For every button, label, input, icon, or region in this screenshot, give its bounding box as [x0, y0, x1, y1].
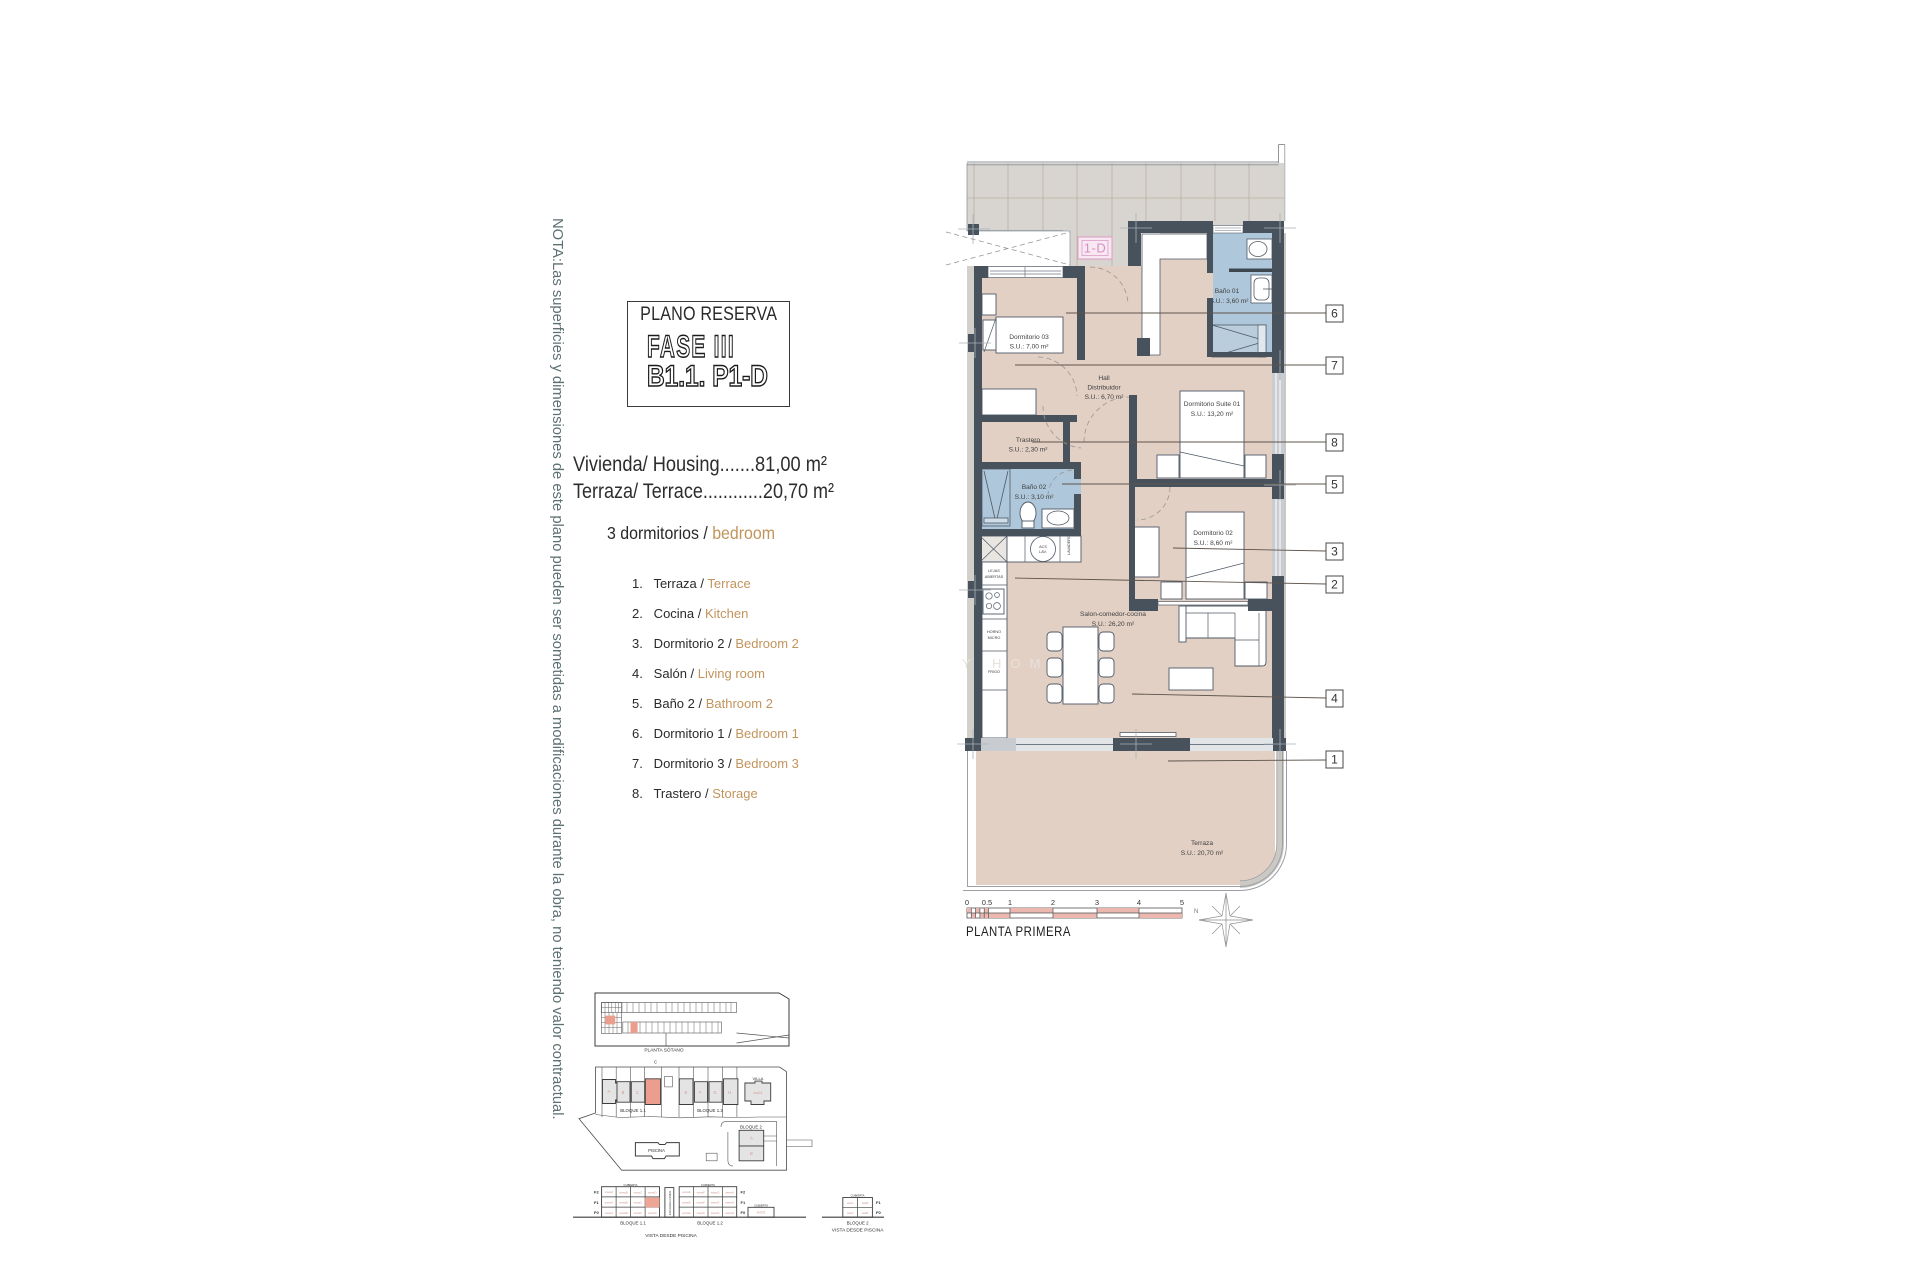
svg-text:MICRO: MICRO: [988, 636, 1001, 640]
svg-text:CUBIERTA: CUBIERTA: [701, 1183, 715, 1187]
svg-text:BLOQUE 1.2: BLOQUE 1.2: [697, 1108, 723, 1113]
svg-text:S.U.: 7,00 m²: S.U.: 7,00 m²: [1010, 344, 1050, 351]
svg-text:Hall: Hall: [1098, 375, 1110, 382]
svg-text:wwwC: wwwC: [634, 1201, 643, 1205]
svg-text:S.U.: 20,70 m²: S.U.: 20,70 m²: [1181, 850, 1224, 857]
svg-text:E: E: [685, 1090, 688, 1095]
svg-text:wwwB: wwwB: [619, 1191, 628, 1195]
svg-text:wwwE: wwwE: [682, 1190, 691, 1194]
svg-text:wwwA: wwwA: [605, 1211, 614, 1215]
svg-text:4: 4: [1331, 692, 1338, 706]
svg-text:BLOQUE 1.1: BLOQUE 1.1: [620, 1108, 646, 1113]
svg-text:wwwA: wwwA: [605, 1190, 614, 1194]
svg-text:Terraza: Terraza: [1191, 840, 1213, 847]
svg-text:CUBIERTA: CUBIERTA: [624, 1183, 638, 1187]
svg-text:wwwB: wwwB: [619, 1201, 628, 1205]
svg-text:1-D: 1-D: [1084, 241, 1106, 256]
svg-text:wwwA: wwwA: [605, 1201, 614, 1205]
svg-text:Dormitorio 02: Dormitorio 02: [1193, 530, 1233, 537]
svg-text:wwH: wwH: [847, 1211, 854, 1215]
svg-text:1: 1: [1331, 753, 1338, 767]
svg-text:wwwE: wwwE: [682, 1211, 691, 1215]
svg-text:PLANTA PRIMERA: PLANTA PRIMERA: [966, 924, 1071, 939]
svg-text:B: B: [622, 1090, 625, 1095]
svg-text:BLOQUE 1.1: BLOQUE 1.1: [620, 1221, 646, 1226]
svg-text:BLOQUE 1.2: BLOQUE 1.2: [697, 1221, 723, 1226]
svg-text:F2: F2: [594, 1190, 599, 1195]
svg-text:S.U.: 3,60 m²: S.U.: 3,60 m²: [1210, 298, 1250, 305]
svg-text:5: 5: [1331, 478, 1338, 492]
svg-text:wwwC: wwwC: [634, 1191, 643, 1195]
svg-text:VILLA: VILLA: [752, 1076, 763, 1081]
svg-text:G: G: [713, 1090, 716, 1095]
svg-text:LEJAS: LEJAS: [988, 569, 1000, 573]
svg-text:wwB: wwB: [862, 1211, 868, 1215]
svg-text:Salon-comedor-cocina: Salon-comedor-cocina: [1080, 611, 1146, 618]
svg-text:ABIERTAS: ABIERTAS: [985, 575, 1004, 579]
svg-text:wwwG: wwwG: [711, 1191, 720, 1195]
svg-text:wwwC: wwwC: [634, 1211, 643, 1215]
svg-text:LAV.: LAV.: [1039, 550, 1047, 554]
svg-text:0: 0: [965, 898, 969, 907]
svg-text:F2: F2: [741, 1190, 746, 1195]
svg-text:2: 2: [1331, 578, 1338, 592]
svg-text:1: 1: [1008, 898, 1012, 907]
svg-text:Baño 01: Baño 01: [1215, 288, 1240, 295]
svg-text:2: 2: [1051, 898, 1055, 907]
svg-text:C: C: [654, 1060, 657, 1065]
svg-text:F0: F0: [741, 1210, 746, 1215]
svg-text:CUBIERTA: CUBIERTA: [851, 1194, 865, 1198]
svg-text:wwwH: wwwH: [725, 1201, 734, 1205]
svg-text:A: A: [750, 1136, 753, 1141]
svg-text:wwwB: wwwB: [619, 1211, 628, 1215]
svg-text:S.U.: 13,20 m²: S.U.: 13,20 m²: [1191, 411, 1234, 418]
svg-text:xxx01: xxx01: [753, 1091, 762, 1095]
svg-text:wwwD: wwwD: [648, 1211, 657, 1215]
svg-text:Dormitorio Suite 01: Dormitorio Suite 01: [1184, 401, 1241, 408]
svg-text:LAVADERO: LAVADERO: [1067, 535, 1071, 555]
svg-text:wwwF: wwwF: [697, 1201, 705, 1205]
svg-text:F1: F1: [594, 1200, 599, 1205]
svg-text:wwwG: wwwG: [711, 1201, 720, 1205]
svg-text:wwB: wwB: [862, 1201, 868, 1205]
svg-text:8: 8: [1331, 436, 1338, 450]
svg-text:PLANTA SÓTANO: PLANTA SÓTANO: [644, 1047, 684, 1054]
svg-text:5: 5: [1180, 898, 1184, 907]
svg-text:S.U.: 6,70 m²: S.U.: 6,70 m²: [1085, 394, 1125, 401]
svg-text:H: H: [728, 1090, 731, 1095]
svg-text:N: N: [1194, 909, 1198, 915]
svg-text:S.U.: 2,30 m²: S.U.: 2,30 m²: [1009, 447, 1049, 454]
svg-text:C: C: [636, 1090, 639, 1095]
svg-text:7: 7: [1331, 359, 1338, 373]
svg-text:A: A: [608, 1089, 611, 1094]
svg-text:F1: F1: [876, 1200, 881, 1205]
svg-text:F0: F0: [876, 1210, 881, 1215]
svg-text:3: 3: [1331, 545, 1338, 559]
svg-text:3: 3: [1095, 898, 1099, 907]
svg-text:F1: F1: [741, 1200, 746, 1205]
svg-text:VISTA DESDE PISCINA: VISTA DESDE PISCINA: [832, 1228, 884, 1234]
svg-text:BLOQUE 2: BLOQUE 2: [847, 1221, 870, 1226]
svg-text:Dormitorio 03: Dormitorio 03: [1009, 334, 1049, 341]
svg-text:0.5: 0.5: [982, 898, 992, 907]
svg-text:wwwH: wwwH: [725, 1211, 734, 1215]
svg-text:F: F: [699, 1090, 702, 1095]
svg-text:wwA: wwA: [847, 1201, 853, 1205]
svg-text:4: 4: [1137, 898, 1141, 907]
svg-text:Baño 02: Baño 02: [1022, 484, 1047, 491]
svg-text:CUBIERTA: CUBIERTA: [754, 1203, 768, 1207]
svg-text:BLOQUE 2: BLOQUE 2: [740, 1124, 763, 1129]
svg-text:wwwD: wwwD: [648, 1191, 657, 1195]
svg-text:wwwG: wwwG: [711, 1211, 720, 1215]
svg-text:PISCINA: PISCINA: [648, 1148, 665, 1153]
svg-text:6: 6: [1331, 307, 1338, 321]
svg-text:ACS: ACS: [1039, 545, 1047, 549]
svg-text:VISTA DESDE PISCINA: VISTA DESDE PISCINA: [645, 1233, 697, 1239]
svg-text:wwwH: wwwH: [725, 1191, 734, 1195]
svg-text:Trastero: Trastero: [1016, 437, 1041, 444]
svg-text:xxx01: xxx01: [757, 1211, 766, 1215]
svg-text:F0: F0: [594, 1210, 599, 1215]
svg-text:ESCALERA COMUN: ESCALERA COMUN: [668, 1191, 672, 1215]
svg-text:B: B: [750, 1151, 753, 1156]
svg-text:Distribuidor: Distribuidor: [1087, 385, 1121, 392]
svg-text:wwwF: wwwF: [697, 1191, 705, 1195]
svg-text:wwwF: wwwF: [697, 1211, 705, 1215]
svg-text:S.U.: 8,60 m²: S.U.: 8,60 m²: [1194, 540, 1234, 547]
svg-text:HORNO: HORNO: [987, 630, 1001, 634]
svg-text:wwwE: wwwE: [682, 1201, 691, 1205]
